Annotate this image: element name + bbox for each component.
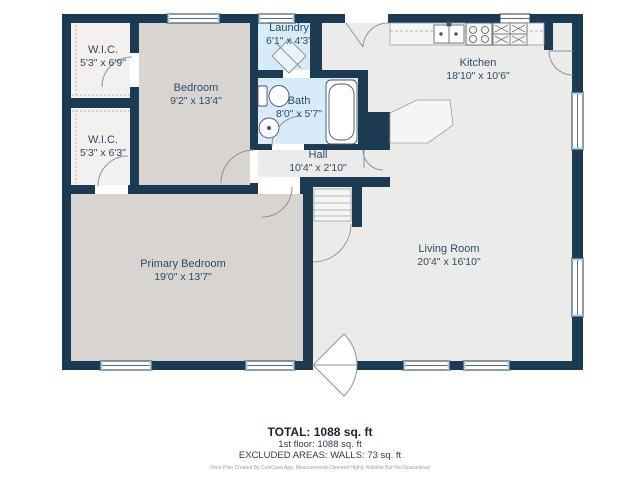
floor-area-text: 1st floor: 1088 sq. ft [0, 439, 640, 450]
room-kitchen-niche-lower [544, 50, 572, 70]
total-area-text: TOTAL: 1088 sq. ft [0, 426, 640, 439]
disclaimer-text: Floor Plan Created By CubiCasa App. Meas… [0, 464, 640, 472]
bathtub-icon [326, 80, 357, 144]
primary-window-2 [245, 361, 295, 370]
kitchen-sink-icon [434, 22, 464, 43]
excluded-area-text: EXCLUDED AREAS: WALLS: 73 sq. ft [0, 450, 640, 461]
bath-sink-icon [259, 118, 279, 138]
laundry-window [258, 14, 295, 23]
room-wic1 [71, 23, 130, 98]
kitchen-top-window [500, 14, 530, 23]
living-window-1 [403, 361, 450, 370]
bedroom-window [167, 14, 220, 23]
kitchen-right-window [572, 92, 583, 150]
room-primary [71, 194, 303, 361]
floor-plan-page: W.I.C. 5'3" x 6'9" W.I.C. 5'3" x 6'3" Be… [0, 0, 640, 480]
oven-grate-icon [493, 23, 527, 45]
living-right-window [572, 258, 583, 317]
room-bedroom [139, 23, 250, 185]
toilet-icon [258, 86, 289, 107]
room-living [313, 187, 572, 361]
stove-icon [466, 23, 492, 45]
room-kitchen-mid [368, 70, 572, 112]
floor-plan-drawing [0, 0, 640, 480]
room-living-top [390, 177, 572, 187]
living-window-2 [463, 361, 510, 370]
primary-window-1 [100, 361, 152, 370]
room-hall [258, 150, 572, 177]
area-summary: TOTAL: 1088 sq. ft 1st floor: 1088 sq. f… [0, 426, 640, 472]
front-door-swing-lower [313, 365, 357, 396]
hall-closet-louver [314, 189, 351, 221]
